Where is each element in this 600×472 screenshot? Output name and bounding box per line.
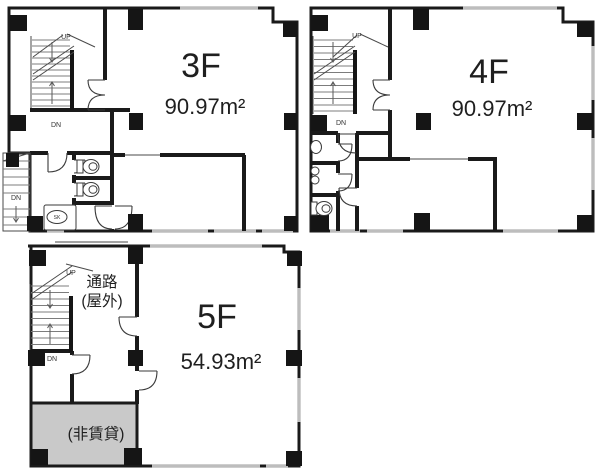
toilet-fixtures-3f: SK [44, 160, 99, 231]
floor-5f-area: 54.93m² [181, 349, 262, 374]
stair-arrow-up-3f [50, 82, 55, 104]
up-label-4f: UP [352, 33, 362, 40]
ext-stair-arrow-3f [14, 206, 19, 222]
hand-sink-4f [311, 167, 319, 175]
toilet-fixtures-4f [311, 141, 333, 216]
dn-label-3f: DN [51, 122, 61, 129]
stair-arrow-down-4f [331, 42, 336, 62]
staircase-4f [313, 34, 388, 114]
dn-label-5f: DN [47, 356, 57, 363]
floor-4f-label: 4F [469, 53, 509, 91]
doors-5f [72, 317, 157, 390]
dn-ext-label-3f: DN [11, 195, 21, 202]
floor-3f-area: 90.97m² [165, 94, 246, 119]
sk-label: SK [54, 215, 61, 221]
hand-sink-4f [311, 176, 319, 184]
outer-walls-3f [9, 8, 297, 231]
passage-label-line1: 通路 [86, 273, 118, 291]
floorplan-page: SK 3F 90.97m² UP DN DN [0, 0, 600, 472]
columns-3f [6, 9, 297, 231]
up-label-5f: UP [66, 270, 76, 277]
floor-4f-area: 90.97m² [452, 96, 533, 121]
floor-5f-label: 5F [197, 298, 237, 336]
floor-4f: 4F 90.97m² UP DN [311, 8, 594, 231]
dn-label-4f: DN [336, 120, 346, 127]
interior-walls-5f [31, 248, 137, 404]
non-rental-label: (非賃貸) [68, 425, 125, 443]
stair-arrow-up-5f [48, 324, 53, 344]
floor-3f-label: 3F [181, 47, 221, 85]
floor-3f: SK 3F 90.97m² UP DN DN [3, 8, 297, 231]
floor-5f: 5F 54.93m² 通路 (屋外) (非賃貸) UP DN [28, 242, 302, 466]
staircase-3f [31, 34, 95, 110]
slop-sink-4f [311, 141, 322, 154]
up-label-3f: UP [61, 34, 71, 41]
passage-label-line2: (屋外) [81, 292, 122, 310]
stair-arrow-up-4f [331, 82, 336, 104]
floorplan-canvas: SK 3F 90.97m² UP DN DN [0, 0, 600, 472]
slop-sink-3f: SK [44, 205, 76, 230]
